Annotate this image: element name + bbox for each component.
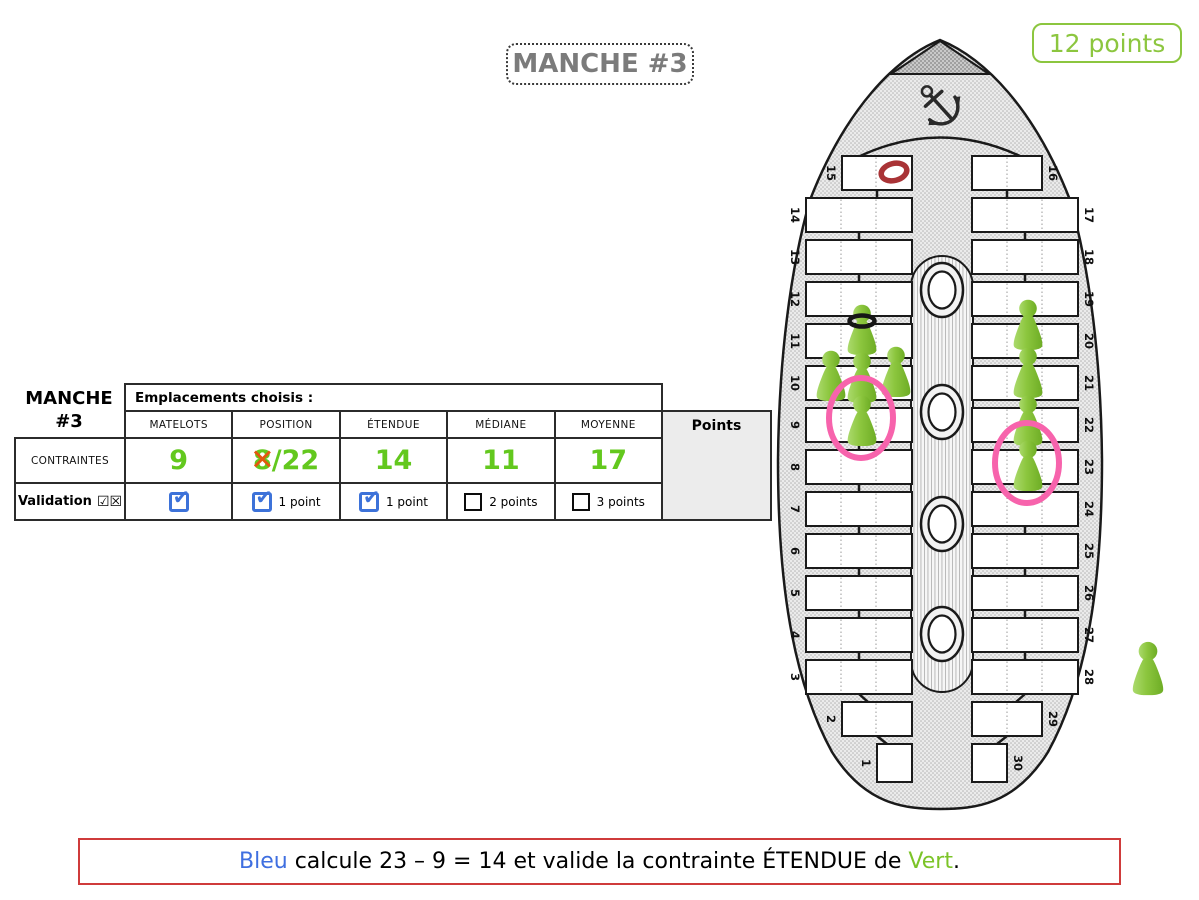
table-round-label-line1: MANCHE (14, 387, 124, 410)
slot-number-22: 22 (1082, 417, 1096, 433)
slot-number-21: 21 (1082, 375, 1096, 391)
slot-number-17: 17 (1082, 207, 1096, 223)
deck-hatch-inner (929, 506, 956, 543)
contrainte-value-moyenne: 17 (554, 437, 663, 484)
validation-cell-moyenne: 3 points (554, 482, 663, 521)
validation-glyphs: ☑☒ (97, 494, 122, 510)
slot-number-26: 26 (1082, 585, 1096, 601)
message-box: Bleu calcule 23 – 9 = 14 et valide la co… (78, 838, 1121, 885)
contrainte-value-m-diane: 11 (446, 437, 555, 484)
slot-number-9: 9 (788, 421, 802, 429)
emplacements-header-label: Emplacements choisis : (135, 390, 313, 406)
points-header: Points (692, 418, 742, 434)
column-header-moyenne: MOYENNE (554, 410, 663, 439)
slot-number-5: 5 (788, 589, 802, 597)
slot-number-8: 8 (788, 463, 802, 471)
slot-number-30: 30 (1011, 755, 1025, 771)
slot-number-25: 25 (1082, 543, 1096, 559)
column-header-m-diane: MÉDIANE (446, 410, 555, 439)
bow-tip (891, 41, 989, 74)
slot-3[interactable] (806, 660, 912, 694)
slot-number-16: 16 (1046, 165, 1060, 181)
points-label: 1 point (386, 495, 428, 509)
slot-2[interactable] (842, 702, 912, 736)
message-part: calcule 23 – 9 = 14 et valide la contrai… (288, 849, 909, 874)
slot-7[interactable] (806, 492, 912, 526)
pawn-reserve[interactable] (1133, 642, 1163, 695)
slot-number-2: 2 (824, 715, 838, 723)
contrainte-value-matelots: 9 (124, 437, 233, 484)
contrainte-value-text: 17 (590, 445, 628, 476)
slot-number-19: 19 (1082, 291, 1096, 307)
points-label: 2 points (489, 495, 537, 509)
slot-number-20: 20 (1082, 333, 1096, 349)
slot-30[interactable] (972, 744, 1007, 782)
slot-number-18: 18 (1082, 249, 1096, 265)
validation-cell--tendue: 1 point (339, 482, 448, 521)
slot-1[interactable] (877, 744, 912, 782)
checkbox-checked[interactable] (252, 492, 272, 512)
slot-number-13: 13 (788, 249, 802, 265)
column-header-matelots: MATELOTS (124, 410, 233, 439)
checkbox-checked[interactable] (359, 492, 379, 512)
slot-number-11: 11 (788, 333, 802, 349)
slot-number-23: 23 (1082, 459, 1096, 475)
slot-14[interactable] (806, 198, 912, 232)
validation-cell-position: 1 point (231, 482, 340, 521)
slot-26[interactable] (972, 576, 1078, 610)
slot-number-10: 10 (788, 375, 802, 391)
slot-16[interactable] (972, 156, 1042, 190)
checkbox-checked[interactable] (169, 492, 189, 512)
validation-cell-m-diane: 2 points (446, 482, 555, 521)
contrainte-value-position: 8/22 (231, 437, 340, 484)
table-round-label-line2: #3 (14, 410, 124, 433)
round-title-box: MANCHE #3 (506, 43, 694, 85)
slot-27[interactable] (972, 618, 1078, 652)
slot-number-12: 12 (788, 291, 802, 307)
slot-25[interactable] (972, 534, 1078, 568)
message-text: Bleu calcule 23 – 9 = 14 et valide la co… (239, 849, 960, 874)
contraintes-label-text: CONTRAINTES (31, 455, 109, 467)
column-header-position: POSITION (231, 410, 340, 439)
checkbox-empty[interactable] (572, 493, 590, 511)
slot-number-14: 14 (788, 207, 802, 223)
slot-17[interactable] (972, 198, 1078, 232)
contraintes-row-label: CONTRAINTES (14, 437, 126, 484)
deck-hatch-inner (929, 394, 956, 431)
table-round-label: MANCHE #3 (14, 387, 124, 433)
slot-number-28: 28 (1082, 669, 1096, 685)
contrainte-value-text: 14 (375, 445, 413, 476)
message-part: . (953, 849, 960, 874)
message-part: Bleu (239, 849, 288, 874)
slot-number-1: 1 (859, 759, 873, 767)
slot-number-15: 15 (824, 165, 838, 181)
slot-18[interactable] (972, 240, 1078, 274)
contrainte-value-text: 11 (482, 445, 520, 476)
slot-number-6: 6 (788, 547, 802, 555)
points-column: Points (661, 410, 772, 521)
validation-row-label: Validation ☑☒ (14, 482, 126, 521)
slot-4[interactable] (806, 618, 912, 652)
slot-13[interactable] (806, 240, 912, 274)
slot-24[interactable] (972, 492, 1078, 526)
contrainte-value--tendue: 14 (339, 437, 448, 484)
deck-hatch-inner (929, 272, 956, 309)
slot-5[interactable] (806, 576, 912, 610)
slot-number-7: 7 (788, 505, 802, 513)
slot-6[interactable] (806, 534, 912, 568)
slot-number-4: 4 (788, 631, 802, 639)
slot-number-29: 29 (1046, 711, 1060, 727)
validation-label-text: Validation (18, 494, 92, 509)
message-part: Vert (908, 849, 953, 874)
checkbox-empty[interactable] (464, 493, 482, 511)
round-title: MANCHE #3 (512, 49, 687, 79)
slot-28[interactable] (972, 660, 1078, 694)
emplacements-header: Emplacements choisis : (124, 383, 663, 412)
slot-number-3: 3 (788, 673, 802, 681)
slot-number-24: 24 (1082, 501, 1096, 517)
slot-29[interactable] (972, 702, 1042, 736)
struck-value: 8 (253, 445, 272, 476)
deck-hatch-inner (929, 616, 956, 653)
boat-board: 1516141713181219112010219228237246255264… (760, 30, 1180, 820)
column-header--tendue: ÉTENDUE (339, 410, 448, 439)
contrainte-value-text: 9 (169, 445, 188, 476)
points-label: 3 points (597, 495, 645, 509)
slot-number-27: 27 (1082, 627, 1096, 643)
contrainte-value-text: /22 (272, 445, 319, 476)
validation-cell-matelots (124, 482, 233, 521)
points-label: 1 point (279, 495, 321, 509)
